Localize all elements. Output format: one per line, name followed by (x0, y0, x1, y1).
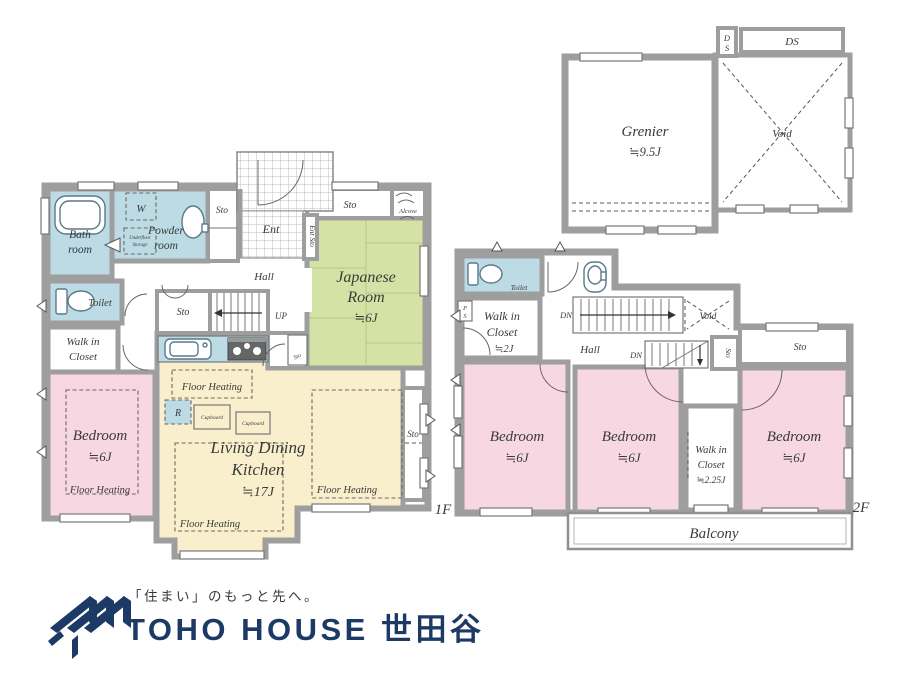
opening-japanese (303, 268, 312, 312)
toilet-icon-2f (468, 263, 502, 285)
label-floor-1f: 1F (435, 502, 453, 518)
label-washer: W (136, 203, 146, 215)
label-ps-s: S (464, 314, 467, 320)
label-ldk-size: ≒17J (242, 485, 275, 500)
label-powder-1: Powder (147, 225, 184, 237)
label-balcony: Balcony (689, 526, 738, 542)
label-powder-2: room (154, 240, 178, 252)
label-grenier-size: ≒9.5J (629, 145, 662, 159)
toho-house-logo-icon (48, 596, 131, 659)
label-ps-p: P (462, 306, 467, 312)
label-sto-japanese: Sto (344, 200, 357, 211)
label-bedroom-2f-3-size: ≒6J (782, 450, 806, 465)
label-fh-center: Floor Heating (179, 519, 240, 530)
entrance-porch (237, 152, 333, 211)
label-cupboard-2: Cupboard (242, 421, 264, 427)
label-hall-1f: Hall (253, 271, 274, 283)
label-void-2f: Void (700, 312, 717, 322)
room-sto-top (208, 189, 238, 261)
room-grenier (565, 57, 715, 230)
label-toilet-2f: Toilet (511, 283, 529, 292)
label-wic-2f-size: ≒2J (495, 344, 515, 355)
label-ent: Ent (262, 222, 280, 236)
label-wic-1f-2: Closet (69, 351, 98, 363)
label-underfloor-1: Underfloor (129, 236, 151, 241)
floorplan-page: Bath room Powder room W Underfloor Stora… (0, 0, 904, 678)
label-sto-stair: Sto (724, 348, 733, 358)
label-alcove: Alcove (398, 208, 417, 215)
basin-icon-2f (584, 262, 606, 292)
label-fh-bedroom: Floor Heating (69, 485, 130, 496)
label-hall-2f: Hall (579, 344, 600, 356)
label-wic-2f-1: Walk in (484, 309, 520, 323)
label-bedroom-1f: Bedroom (73, 428, 128, 444)
label-fh-kitchen: Floor Heating (181, 382, 242, 393)
logo-brand: TOHO HOUSE 世田谷 (126, 612, 484, 647)
label-void-grenier: Void (772, 128, 792, 140)
label-wic225-size: ≒2.25J (697, 476, 727, 486)
label-bath-2: room (68, 244, 92, 256)
label-sto-mid: Sto (177, 307, 190, 318)
room-sto-under-stairs (288, 335, 307, 365)
label-fh-right: Floor Heating (316, 485, 377, 496)
label-cupboard-1: Cupboard (201, 415, 223, 421)
label-ds-d: D (723, 33, 731, 43)
label-wic225-1: Walk in (695, 445, 726, 456)
label-ent-sto: Ent Sto (308, 224, 317, 247)
room-bedroom-1f (48, 372, 155, 518)
label-wic-2f-2: Closet (487, 325, 518, 339)
label-ds: DS (784, 36, 799, 48)
label-ldk-2: Kitchen (231, 460, 285, 479)
label-wic-1f-1: Walk in (67, 336, 100, 348)
room-wic-1f (48, 327, 118, 372)
label-bedroom-2f-1: Bedroom (490, 429, 545, 445)
label-toilet-1f: Toilet (88, 298, 113, 309)
label-bedroom-1f-size: ≒6J (88, 449, 112, 464)
sink-icon (165, 339, 211, 359)
label-japanese-2: Room (346, 289, 384, 306)
label-underfloor-2: Storage (133, 243, 149, 248)
label-bedroom-2f-3: Bedroom (767, 429, 822, 445)
logo-tagline: 「住まい」のもっと先へ。 (128, 589, 320, 604)
toho-house-logo: 「住まい」のもっと先へ。 TOHO HOUSE 世田谷 (48, 589, 484, 659)
label-bath-1: Bath (69, 229, 91, 241)
label-up: UP (275, 311, 287, 321)
label-grenier: Grenier (622, 124, 669, 140)
label-japanese-size: ≒6J (354, 310, 378, 325)
label-bedroom-2f-2: Bedroom (602, 429, 657, 445)
label-dn-lower: DN (629, 350, 643, 360)
label-sto-top: Sto (216, 206, 228, 216)
room-wic-225 (686, 406, 736, 510)
label-floor-2f: 2F (853, 500, 871, 516)
floorplan-1f: Bath room Powder room W Underfloor Stora… (37, 152, 452, 559)
floorplan-canvas: Bath room Powder room W Underfloor Stora… (0, 0, 904, 678)
label-bedroom-2f-2-size: ≒6J (617, 450, 641, 465)
label-japanese-1: Japanese (336, 269, 396, 286)
label-dn-upper: DN (559, 310, 573, 320)
floorplan-2f: Grenier ≒9.5J Void D S DS Toilet P S Wal… (451, 28, 870, 549)
label-fridge: R (174, 408, 181, 419)
label-sto-right-2f: Sto (794, 342, 807, 353)
label-sto-right: Sto (407, 429, 419, 439)
label-wic225-2: Closet (698, 460, 726, 471)
label-ldk-1: Living Dining (210, 438, 306, 457)
stove-icon (228, 338, 266, 360)
label-bedroom-2f-1-size: ≒6J (505, 450, 529, 465)
